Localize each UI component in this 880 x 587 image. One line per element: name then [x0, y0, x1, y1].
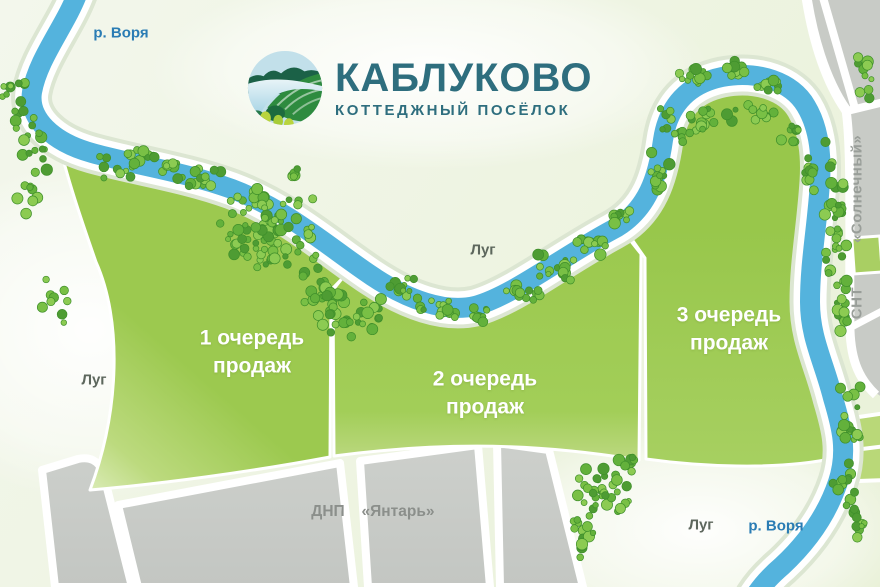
masterplan-map: КАБЛУКОВО КОТТЕДЖНЫЙ ПОСЁЛОК р. Воря р. … [0, 0, 880, 587]
green-plot-in-snt [852, 236, 880, 274]
parcel-dnp-east [360, 445, 490, 587]
map-svg [0, 0, 880, 587]
